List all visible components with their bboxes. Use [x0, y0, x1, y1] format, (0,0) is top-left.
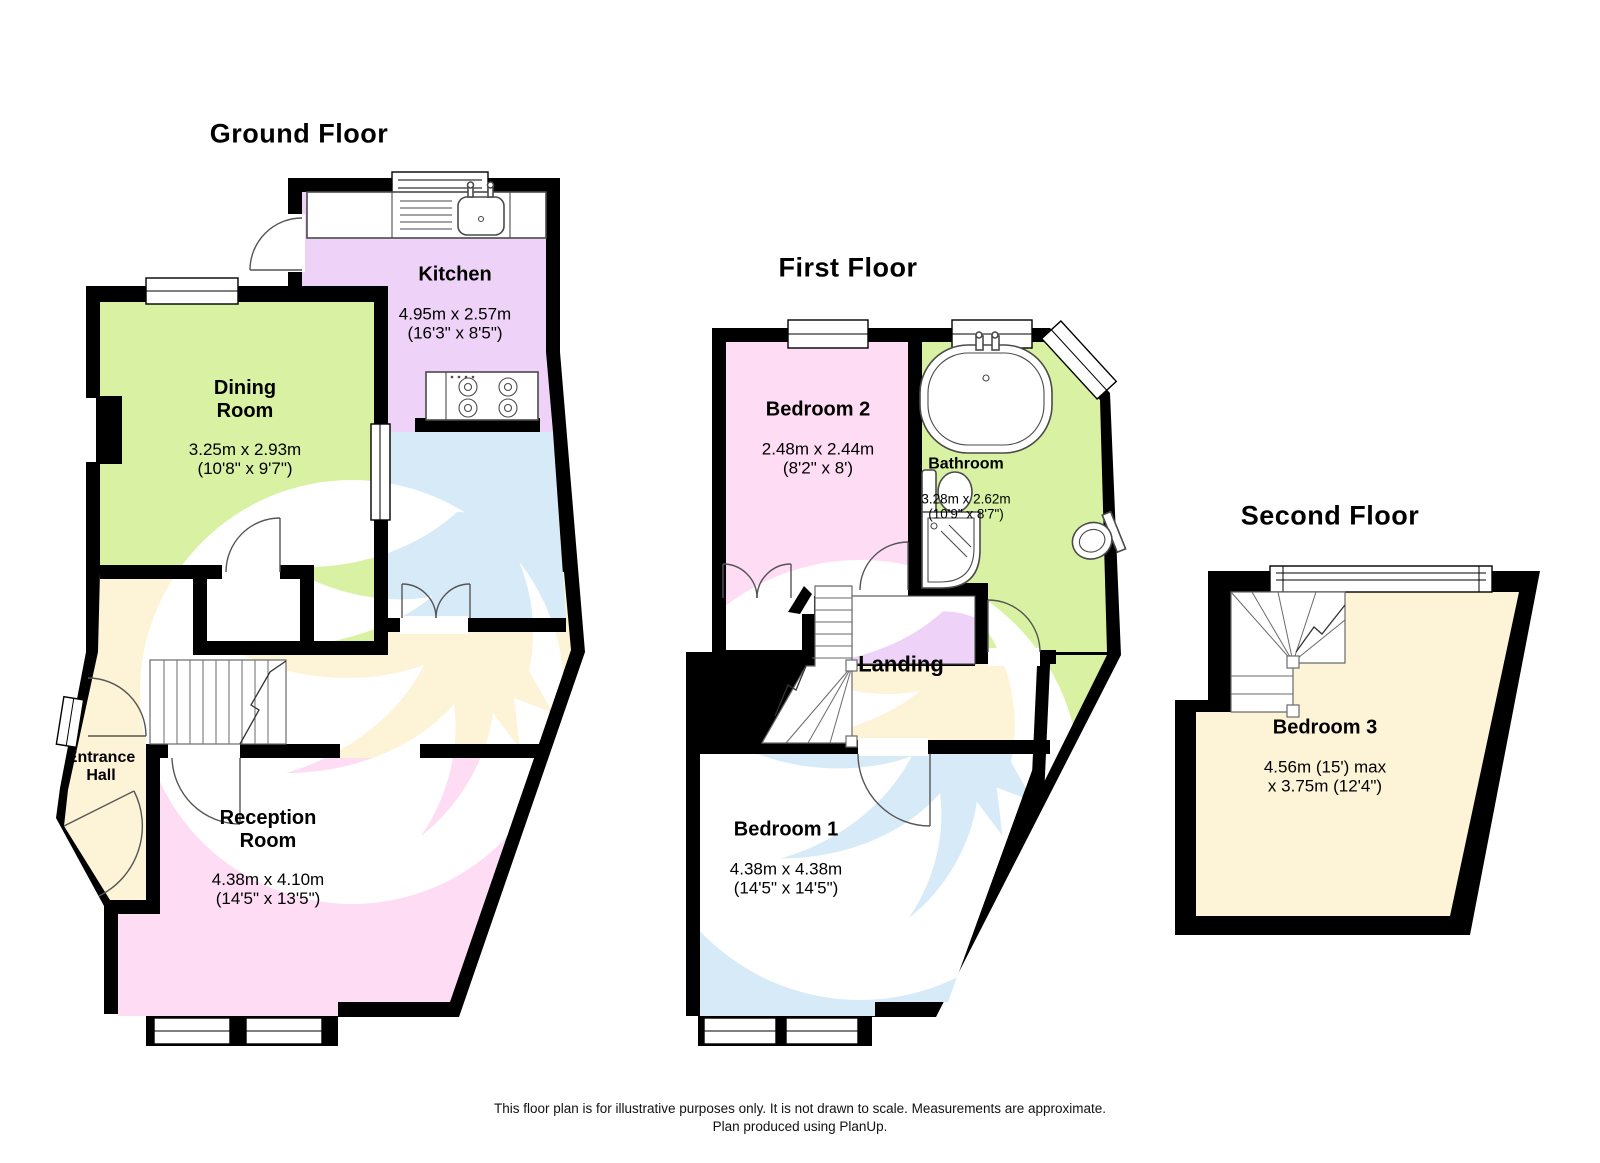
reception-bay-window-1 — [154, 1018, 230, 1044]
bedroom1-bay-window-1 — [704, 1018, 776, 1044]
disclaimer-text: This floor plan is for illustrative purp… — [494, 1101, 1106, 1116]
first-floor-plan — [620, 320, 1140, 1046]
stairs-icon — [150, 660, 286, 744]
bedroom3-window — [1270, 566, 1492, 592]
stove-icon — [426, 372, 538, 420]
reception-bay-window-2 — [246, 1018, 322, 1044]
credit-text: Plan produced using PlanUp. — [713, 1119, 888, 1134]
floorplan-drawing — [0, 0, 1600, 1163]
dining-window — [146, 278, 238, 304]
floorplan-canvas: Ground Floor First Floor Second Floor Ki… — [0, 0, 1600, 1163]
bedroom1-bay-window-2 — [786, 1018, 858, 1044]
dining-side-window — [371, 424, 390, 520]
second-windows — [1270, 566, 1492, 592]
bedroom2-window — [788, 320, 868, 348]
ground-floor-plan — [56, 172, 600, 1046]
second-floor-plan — [1175, 566, 1540, 935]
toilet-icon — [922, 470, 972, 514]
shower-icon — [922, 512, 980, 588]
